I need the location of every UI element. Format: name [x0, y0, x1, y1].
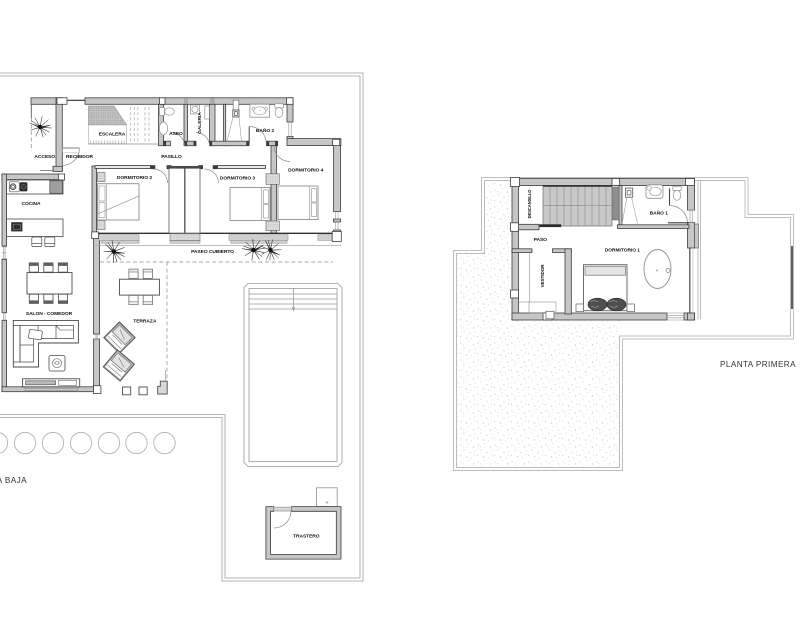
svg-text:PLANTA BAJA: PLANTA BAJA: [0, 476, 27, 485]
svg-text:RECIBIDOR: RECIBIDOR: [66, 154, 94, 160]
svg-text:TERRAZA: TERRAZA: [133, 319, 157, 325]
svg-text:ESCALERA: ESCALERA: [99, 132, 126, 138]
svg-text:PLANTA PRIMERA: PLANTA PRIMERA: [720, 360, 796, 369]
svg-text:DESCANSILLO: DESCANSILLO: [527, 189, 532, 219]
svg-text:VESTIDOR: VESTIDOR: [540, 264, 545, 288]
svg-text:BAÑO 1: BAÑO 1: [650, 210, 669, 217]
svg-text:ASEO: ASEO: [169, 131, 183, 137]
svg-text:DORMITORIO 1: DORMITORIO 1: [605, 248, 641, 254]
svg-text:PASO: PASO: [534, 237, 548, 243]
svg-text:ACCESO: ACCESO: [34, 154, 55, 160]
svg-text:DORMITORIO 4: DORMITORIO 4: [288, 168, 324, 174]
svg-text:GALERIA: GALERIA: [197, 112, 203, 134]
svg-text:TRASTERO: TRASTERO: [293, 534, 320, 540]
svg-text:PASILLO: PASILLO: [161, 154, 182, 160]
svg-text:PASEO CUBIERTO: PASEO CUBIERTO: [191, 249, 234, 255]
svg-text:DORMITORIO 3: DORMITORIO 3: [220, 176, 256, 182]
svg-text:BAÑO 2: BAÑO 2: [256, 127, 275, 134]
svg-text:SALON - COMEDOR: SALON - COMEDOR: [26, 311, 73, 317]
svg-text:DORMITORIO 2: DORMITORIO 2: [117, 175, 153, 181]
svg-text:COCINA: COCINA: [22, 201, 42, 207]
